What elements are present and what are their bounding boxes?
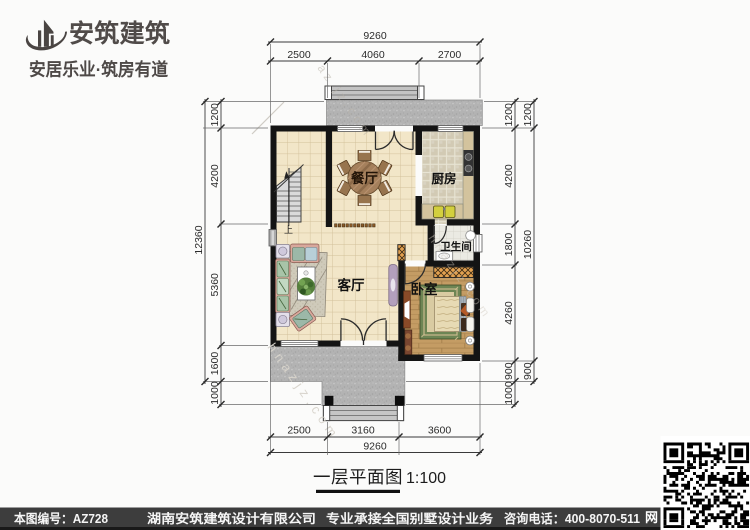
svg-text:湖南安筑建筑设计有限公司: 湖南安筑建筑设计有限公司 <box>147 511 316 526</box>
svg-text:1200: 1200 <box>503 103 515 127</box>
svg-text:咨询电话：400-8070-511: 咨询电话：400-8070-511 <box>504 511 640 526</box>
svg-text:一层平面图: 一层平面图 <box>313 467 403 487</box>
svg-text:卧室: 卧室 <box>411 281 438 297</box>
svg-text:4260: 4260 <box>503 301 515 325</box>
svg-text:1200: 1200 <box>209 103 221 127</box>
svg-text:4200: 4200 <box>503 164 515 188</box>
svg-text:5360: 5360 <box>209 273 221 297</box>
svg-text:9260: 9260 <box>363 30 387 42</box>
svg-text:1200: 1200 <box>522 103 534 127</box>
svg-text:3600: 3600 <box>428 425 452 437</box>
svg-text:安居乐业·筑房有道: 安居乐业·筑房有道 <box>29 60 168 80</box>
svg-text:4200: 4200 <box>209 164 221 188</box>
svg-text:上: 上 <box>284 225 293 235</box>
svg-text:2500: 2500 <box>287 425 311 437</box>
svg-text:餐厅: 餐厅 <box>350 170 378 186</box>
svg-text:1800: 1800 <box>503 233 515 257</box>
svg-text:1000: 1000 <box>209 381 221 405</box>
svg-text:900: 900 <box>503 362 515 380</box>
svg-text:10260: 10260 <box>522 230 534 259</box>
svg-text:1600: 1600 <box>209 352 221 376</box>
svg-text:9260: 9260 <box>363 441 387 453</box>
svg-text:专业承接全国别墅设计业务: 专业承接全国别墅设计业务 <box>326 511 494 526</box>
svg-text:4060: 4060 <box>361 49 385 61</box>
svg-text:客厅: 客厅 <box>337 277 365 293</box>
svg-text:本图编号：AZ728: 本图编号：AZ728 <box>14 511 108 526</box>
svg-text:1000: 1000 <box>503 381 515 405</box>
svg-text:安筑建筑: 安筑建筑 <box>69 19 170 48</box>
svg-text:2500: 2500 <box>287 49 311 61</box>
svg-text:网: 网 <box>645 510 658 525</box>
svg-text:3160: 3160 <box>351 425 375 437</box>
svg-text:1:100: 1:100 <box>406 470 446 487</box>
svg-text:12360: 12360 <box>193 225 205 254</box>
svg-text:900: 900 <box>522 362 534 380</box>
svg-text:2700: 2700 <box>438 49 462 61</box>
svg-text:厨房: 厨房 <box>431 171 456 186</box>
